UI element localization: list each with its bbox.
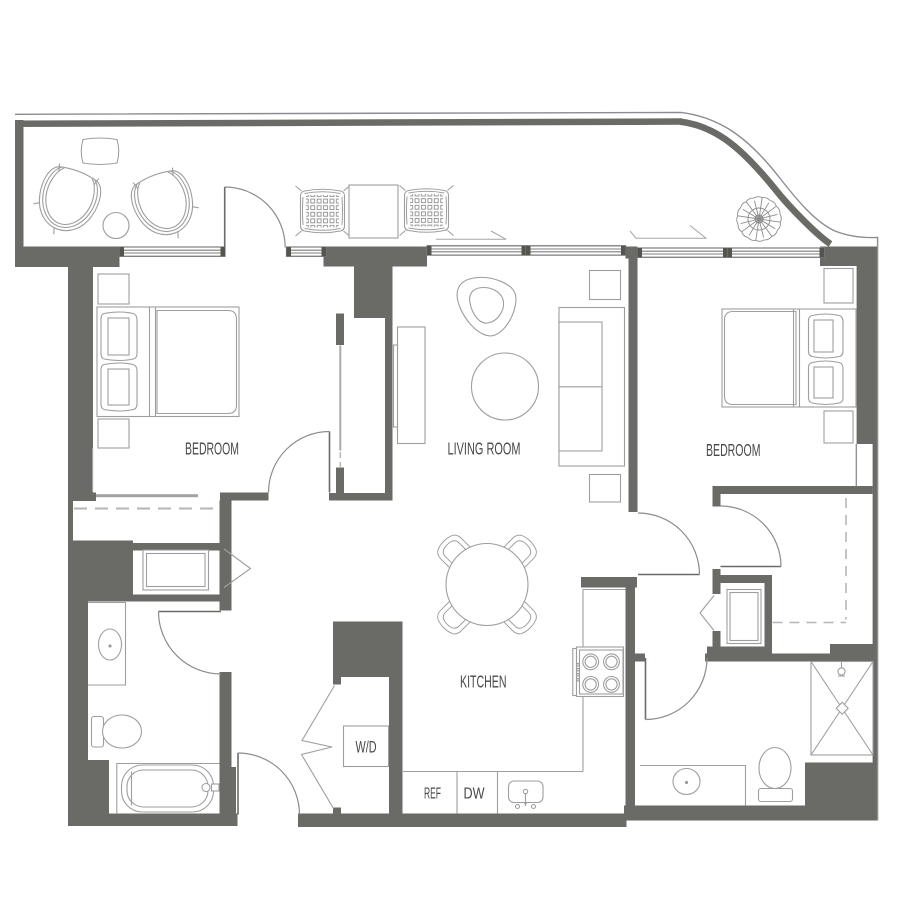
svg-text:W/D: W/D xyxy=(356,739,377,757)
svg-text:REF: REF xyxy=(424,786,441,803)
svg-text:KITCHEN: KITCHEN xyxy=(460,672,507,692)
svg-text:BEDROOM: BEDROOM xyxy=(185,438,239,458)
svg-text:LIVING ROOM: LIVING ROOM xyxy=(448,438,521,458)
svg-text:DW: DW xyxy=(464,786,486,803)
svg-text:BEDROOM: BEDROOM xyxy=(706,440,761,460)
